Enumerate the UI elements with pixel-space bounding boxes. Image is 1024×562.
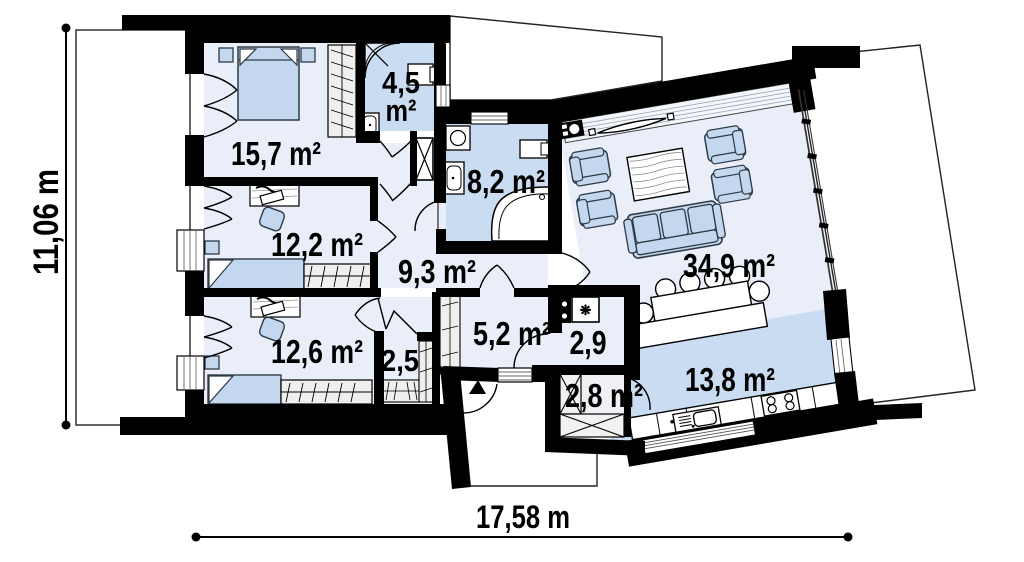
- svg-text:❋: ❋: [580, 302, 592, 318]
- svg-text:12,6 m²: 12,6 m²: [271, 333, 363, 370]
- svg-text:17,58 m: 17,58 m: [476, 499, 570, 535]
- svg-text:13,8 m²: 13,8 m²: [685, 361, 775, 398]
- svg-text:12,2 m²: 12,2 m²: [271, 226, 363, 263]
- svg-text:11,06 m: 11,06 m: [27, 169, 66, 275]
- svg-text:5,2 m²: 5,2 m²: [473, 315, 551, 352]
- svg-text:m²: m²: [386, 93, 417, 128]
- svg-text:15,7 m²: 15,7 m²: [231, 135, 321, 172]
- svg-text:2,9: 2,9: [570, 324, 607, 361]
- svg-text:2,5: 2,5: [381, 343, 419, 378]
- svg-text:34,9 m²: 34,9 m²: [683, 247, 775, 284]
- svg-text:2,8 m²: 2,8 m²: [565, 377, 643, 414]
- svg-text:9,3 m²: 9,3 m²: [398, 253, 476, 290]
- svg-text:8,2 m²: 8,2 m²: [467, 163, 545, 200]
